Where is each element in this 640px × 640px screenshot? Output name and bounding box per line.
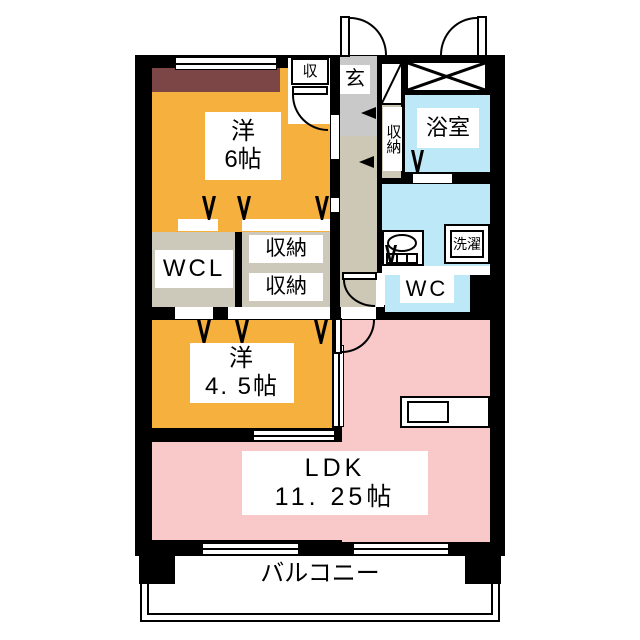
wall-right bbox=[490, 55, 505, 556]
storage-lower-label: 収納 bbox=[249, 273, 323, 301]
sliding-door-bedroom45-bottom bbox=[253, 430, 335, 441]
opening-wc-door bbox=[376, 273, 384, 307]
bedroom6-label: 洋 6帖 bbox=[205, 112, 281, 180]
entrance-door-leaf bbox=[340, 16, 350, 57]
window-ldk-bottom-right bbox=[353, 543, 449, 555]
balcony-pillar-right bbox=[465, 552, 501, 584]
laundry-label: 洗濯 bbox=[450, 230, 484, 258]
diagonal-line-icon bbox=[382, 64, 401, 103]
kitchen-sink bbox=[407, 401, 449, 423]
opening-washroom-wc bbox=[385, 266, 420, 274]
small-storage-label: 収 bbox=[291, 58, 329, 85]
bathroom-label: 浴室 bbox=[417, 108, 479, 148]
bedroom6-door-leaf bbox=[292, 86, 328, 95]
closet-maroon-strip bbox=[152, 68, 280, 92]
balcony-pillar-left bbox=[139, 552, 175, 584]
ldk-label: LDK 11. 25帖 bbox=[242, 451, 428, 515]
opening-bedroom6-closet-right bbox=[242, 219, 330, 231]
bedroom45-label: 洋 4. 5帖 bbox=[190, 343, 294, 403]
wall-wc-right bbox=[470, 275, 490, 312]
window-ldk-bottom-left bbox=[202, 543, 299, 555]
shoe-cabinet bbox=[380, 62, 403, 105]
opening-bedroom6-closet-left bbox=[178, 219, 218, 231]
x-cross-icon bbox=[408, 63, 485, 90]
wall-bottom bbox=[135, 540, 505, 556]
opening-ldk-door bbox=[341, 307, 376, 319]
sliding-door-bedroom45-right bbox=[333, 345, 344, 427]
window-bedroom6-top bbox=[175, 57, 277, 70]
wall-left bbox=[135, 55, 152, 556]
opening-hall-b bbox=[331, 198, 339, 212]
entrance-door-arc bbox=[350, 17, 387, 55]
floor-plan: 洗濯 洋 6帖 WCL 収納 収納 洋 4. 5帖 浴室 WC 玄 bbox=[0, 0, 640, 640]
entrance-label: 玄 bbox=[340, 65, 370, 94]
opening-bedroom45-closet-right bbox=[228, 307, 330, 319]
opening-bath-door bbox=[413, 174, 452, 183]
storage-upper-label: 収納 bbox=[249, 235, 323, 263]
wall-hall-left bbox=[330, 55, 340, 307]
opening-hall-a bbox=[331, 115, 339, 159]
wall-wcl-divider bbox=[235, 232, 242, 307]
wc-label: WC bbox=[400, 275, 454, 303]
opening-bedroom45-closet-left bbox=[175, 307, 213, 319]
balcony-label: バルコニー bbox=[245, 557, 395, 591]
ldk-door-leaf bbox=[334, 318, 342, 354]
wc-door-leaf bbox=[342, 272, 377, 280]
void-x-box bbox=[403, 58, 490, 95]
service-door-leaf bbox=[477, 16, 487, 57]
wcl-label: WCL bbox=[155, 250, 233, 288]
service-door-arc bbox=[440, 17, 477, 55]
washing-machine-box: 洗濯 bbox=[444, 224, 490, 264]
hall-storage-label: 収納 bbox=[383, 107, 402, 171]
